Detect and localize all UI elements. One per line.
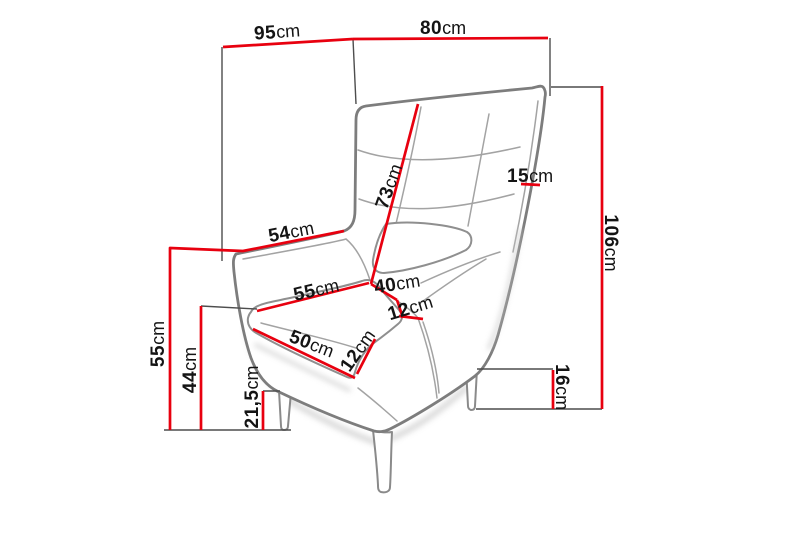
- dimension-label-seat-top-height: 44cm: [180, 347, 201, 393]
- chair-leg-front-right: [373, 430, 392, 492]
- dimension-label-overall-width: 80cm: [420, 18, 466, 39]
- dimension-label-overall-depth: 95cm: [253, 20, 300, 44]
- dimension-label-wing-height: 55cm: [148, 321, 169, 367]
- helper-drop-middle: [353, 39, 356, 104]
- dimension-label-total-height: 106cm: [600, 214, 621, 271]
- armchair-dimension-svg: 95cm 80cm 54cm 73cm 15cm 106cm 55cm 40cm…: [0, 0, 800, 533]
- dimension-label-under-seat-clearance: 21,5cm: [242, 366, 263, 429]
- dimension-label-leg-height: 16cm: [551, 364, 572, 410]
- product-dimension-diagram: 95cm 80cm 54cm 73cm 15cm 106cm 55cm 40cm…: [0, 0, 800, 533]
- dimension-label-side-thickness: 15cm: [507, 166, 553, 187]
- dimension-line-overall-width: [353, 38, 548, 39]
